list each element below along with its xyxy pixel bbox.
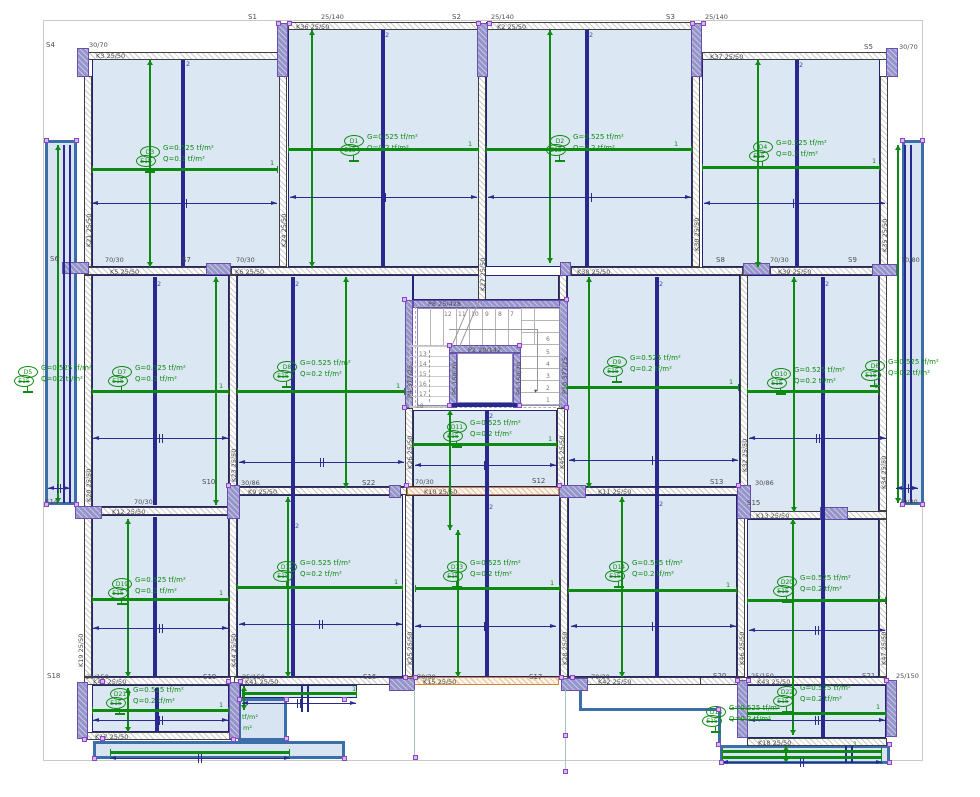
label: K38 25/50 xyxy=(577,269,610,276)
selection-handle[interactable] xyxy=(900,502,905,507)
selection-handle[interactable] xyxy=(238,679,243,684)
ctick xyxy=(588,193,589,202)
ell: E15 xyxy=(443,430,463,442)
column-S21[interactable] xyxy=(886,680,897,737)
selection-handle[interactable] xyxy=(920,138,925,143)
stair-step-number: 15 xyxy=(419,372,427,378)
selection-handle[interactable] xyxy=(447,343,452,348)
label: 1 xyxy=(219,702,223,709)
lbl f7 grn: G=0.525 tf/m² xyxy=(367,134,418,141)
label: K44 25/50 xyxy=(231,634,238,667)
label: K5 25/50 xyxy=(110,269,139,276)
selection-handle[interactable] xyxy=(559,675,564,680)
dimln xyxy=(704,203,885,204)
stair-step-number: 11 xyxy=(458,312,466,318)
selection-handle[interactable] xyxy=(276,21,281,26)
ell: E15 xyxy=(702,715,722,727)
ctick xyxy=(815,716,816,725)
selection-handle[interactable] xyxy=(402,405,407,410)
selection-handle[interactable] xyxy=(284,736,289,741)
label: K19 25/50 xyxy=(78,634,85,667)
ctick xyxy=(198,754,199,763)
etick xyxy=(736,587,737,594)
label: K47 25/50 xyxy=(881,632,888,665)
selection-handle[interactable] xyxy=(44,138,49,143)
ell: E15 xyxy=(546,144,566,156)
stair-step-number: 3 xyxy=(546,374,550,380)
etick xyxy=(879,164,880,171)
selection-handle[interactable] xyxy=(74,502,79,507)
ctick xyxy=(162,716,163,725)
dimension-line xyxy=(569,458,738,463)
selection-handle[interactable] xyxy=(476,21,481,26)
label: 1 xyxy=(674,141,678,148)
label: 2 xyxy=(589,32,593,39)
label: P10 377/25 xyxy=(562,357,569,394)
beam-K19[interactable] xyxy=(84,515,92,677)
selection-handle[interactable] xyxy=(413,675,418,680)
ctick xyxy=(652,456,653,465)
gndh xyxy=(782,711,792,713)
stair-step-number: 13 xyxy=(419,352,427,358)
arrR xyxy=(550,624,556,628)
triU xyxy=(55,145,61,150)
label: K30 25/50 xyxy=(694,218,701,251)
lbl f7 grn: G=0.525 tf/m² xyxy=(729,705,780,712)
selection-handle[interactable] xyxy=(287,21,292,26)
load-axis-line xyxy=(181,60,185,267)
label: 70/30 xyxy=(134,499,153,506)
selection-handle[interactable] xyxy=(517,343,522,348)
beam-K6[interactable] xyxy=(231,267,480,275)
arrR xyxy=(880,436,886,440)
stair-step-number: 2 xyxy=(546,386,550,392)
dimension-line xyxy=(290,195,477,200)
load-strip-line xyxy=(722,750,882,753)
lbl f7 grn: G=0.525 tf/m² xyxy=(794,367,845,374)
selection-handle[interactable] xyxy=(887,760,892,765)
stair-step-number: 18 xyxy=(416,404,424,410)
load-strip-line xyxy=(567,386,739,389)
selection-handle[interactable] xyxy=(920,502,925,507)
label: 2 xyxy=(659,501,663,508)
selection-handle[interactable] xyxy=(404,483,409,488)
etick xyxy=(228,596,229,603)
ctick xyxy=(908,484,909,493)
selection-handle[interactable] xyxy=(517,403,522,408)
load-axis-line xyxy=(821,277,825,737)
column-S22[interactable] xyxy=(389,485,401,498)
triU xyxy=(790,519,796,524)
selection-handle[interactable] xyxy=(716,742,721,747)
lbl f7 grn: G=0.525 tf/m² xyxy=(630,355,681,362)
load-strip-line xyxy=(242,692,357,695)
selection-handle[interactable] xyxy=(82,737,87,742)
etick xyxy=(242,690,243,697)
arrL xyxy=(896,486,902,490)
selection-handle[interactable] xyxy=(226,679,231,684)
dimension-line xyxy=(488,195,691,200)
ctick xyxy=(803,758,804,767)
ctick xyxy=(818,626,819,635)
selection-handle[interactable] xyxy=(564,405,569,410)
selection-handle[interactable] xyxy=(735,678,740,683)
column-S9[interactable] xyxy=(872,264,897,276)
column-S1[interactable] xyxy=(277,23,288,77)
selection-handle[interactable] xyxy=(413,755,418,760)
column-S5[interactable] xyxy=(886,48,898,77)
gndh xyxy=(452,446,462,448)
arrL xyxy=(569,458,575,462)
column-S3[interactable] xyxy=(691,23,702,77)
selection-handle[interactable] xyxy=(284,697,289,702)
selection-handle[interactable] xyxy=(563,769,568,774)
selection-handle[interactable] xyxy=(342,756,347,761)
selection-handle[interactable] xyxy=(237,697,242,702)
ctick xyxy=(818,716,819,725)
label: 2 xyxy=(385,32,389,39)
label: 25/150 xyxy=(896,673,919,680)
etick xyxy=(288,146,289,153)
arrL xyxy=(93,626,99,630)
dimension-line xyxy=(415,463,556,468)
slab-panel-D3[interactable] xyxy=(92,59,280,267)
etick xyxy=(747,388,748,395)
label: K2 25/50 xyxy=(497,24,526,31)
label: S21 xyxy=(862,673,875,680)
arrR xyxy=(271,201,277,205)
arrR xyxy=(222,436,228,440)
etick xyxy=(92,388,93,395)
dimension-line xyxy=(92,201,277,206)
selection-handle[interactable] xyxy=(231,737,236,742)
lbl f7 grn: Q=0.2 tf/m² xyxy=(135,588,177,595)
ctick xyxy=(382,193,383,202)
walk-line xyxy=(537,329,538,391)
column-S18[interactable] xyxy=(77,682,88,739)
arrL xyxy=(242,701,248,705)
load-direction-line xyxy=(588,277,590,488)
selection-handle[interactable] xyxy=(557,483,562,488)
triD xyxy=(619,672,625,677)
label: S20 xyxy=(713,673,726,680)
ctick xyxy=(323,458,324,467)
load-strip-line xyxy=(568,589,737,592)
selection-handle[interactable] xyxy=(100,736,105,741)
label: S17 xyxy=(529,674,542,681)
label: K21 25/50 xyxy=(86,214,93,247)
label: K36 25/50 xyxy=(296,24,329,31)
lbl f7 grn: Q=0.2 tf/m² xyxy=(800,586,842,593)
stair-step-number: 5 xyxy=(546,350,550,356)
label: S10 xyxy=(202,479,215,486)
label: K45 25/50 xyxy=(559,436,566,469)
lbl f7 grn: G=0.525 tf/m² xyxy=(133,687,184,694)
ctick xyxy=(487,461,488,470)
ell: E15 xyxy=(273,370,293,382)
label: 30/70 xyxy=(89,42,108,49)
lbl f7 grn: Q=0.2 tf/m² xyxy=(300,571,342,578)
arrR xyxy=(284,756,290,760)
slab-panel-D9[interactable] xyxy=(567,275,740,487)
load-strip-line xyxy=(110,751,290,754)
label: 1 xyxy=(726,582,730,589)
balcony-edge xyxy=(579,708,720,711)
selection-handle[interactable] xyxy=(44,502,49,507)
ctick xyxy=(159,716,160,725)
label: 1 xyxy=(219,590,223,597)
label: 70/30 xyxy=(770,257,789,264)
arrL xyxy=(749,436,755,440)
selection-handle[interactable] xyxy=(100,679,105,684)
dimension-line xyxy=(93,626,228,631)
arrR xyxy=(222,626,228,630)
gndh xyxy=(782,601,792,603)
walk-arrow: ▾ xyxy=(534,388,537,395)
selection-handle[interactable] xyxy=(342,697,347,702)
lbl f7 grn: G=0.525 tf/m² xyxy=(632,560,683,567)
lbl f7 grn: G=0.525 tf/m² xyxy=(776,140,827,147)
arrL xyxy=(239,460,245,464)
stair-step-number: 1 xyxy=(546,398,550,404)
ctick xyxy=(655,456,656,465)
etick xyxy=(486,146,487,153)
selection-handle[interactable] xyxy=(92,756,97,761)
column-S2[interactable] xyxy=(477,23,488,77)
etick xyxy=(92,166,93,173)
selection-handle[interactable] xyxy=(736,483,741,488)
balcony-left[interactable] xyxy=(45,140,77,505)
selection-handle[interactable] xyxy=(447,403,452,408)
triD xyxy=(309,262,315,267)
stair-step-number: 7 xyxy=(510,312,514,318)
load-direction-line xyxy=(57,145,59,503)
dimension-line xyxy=(722,760,882,765)
etick xyxy=(878,388,879,395)
label: S9 xyxy=(848,257,857,264)
arrR xyxy=(222,718,228,722)
label: 1 xyxy=(396,383,400,390)
triU xyxy=(755,60,761,65)
triU xyxy=(455,530,461,535)
etick xyxy=(691,146,692,153)
stair-step-number: 4 xyxy=(546,362,550,368)
column-S19[interactable] xyxy=(229,682,240,739)
load-direction-line xyxy=(897,145,899,503)
label: 1 xyxy=(219,383,223,390)
label: m² xyxy=(243,725,252,732)
arrL xyxy=(93,718,99,722)
dimension-line xyxy=(749,436,886,441)
column-S4[interactable] xyxy=(77,48,89,77)
stair-step-number: 12 xyxy=(444,312,452,318)
selection-handle[interactable] xyxy=(226,483,231,488)
label: K37 25/50 xyxy=(710,54,743,61)
label: 25/150 xyxy=(242,674,265,681)
column-S12[interactable] xyxy=(559,485,586,498)
label: 25/140 xyxy=(321,14,344,21)
selection-handle[interactable] xyxy=(570,675,575,680)
label: S22 xyxy=(362,480,375,487)
label: K34 25/50 xyxy=(881,456,888,489)
selection-handle[interactable] xyxy=(74,138,79,143)
label: K10 25/50 xyxy=(424,489,457,496)
ell: E15 xyxy=(605,570,625,582)
dimension-line xyxy=(704,201,885,206)
slab-panel-D8[interactable] xyxy=(237,275,413,487)
triU xyxy=(343,277,349,282)
gndh xyxy=(711,731,721,733)
dimension-line xyxy=(896,486,918,491)
lbl f7 grn: Q=0.2 tf/m² xyxy=(133,698,175,705)
triD xyxy=(213,500,219,505)
gndh xyxy=(612,381,622,383)
label: 1 xyxy=(270,160,274,167)
label: S16 xyxy=(363,674,376,681)
selection-handle[interactable] xyxy=(884,678,889,683)
label: 1 xyxy=(548,436,552,443)
selection-handle[interactable] xyxy=(716,707,721,712)
lbl f7 grn: G=0.525 tf/m² xyxy=(888,359,939,366)
triU xyxy=(791,277,797,282)
lbl f7 grn: Q=0.2 tf/m² xyxy=(300,371,342,378)
label: K24 25/50 xyxy=(281,214,288,247)
arrR xyxy=(398,460,404,464)
dimln xyxy=(92,203,277,204)
lbl f7 grn: Q=0.2 tf/m² xyxy=(135,376,177,383)
ctick xyxy=(319,620,320,629)
column-S14[interactable] xyxy=(75,506,102,519)
label: K12 25/50 xyxy=(112,509,145,516)
selection-handle[interactable] xyxy=(900,138,905,143)
load-axis-line xyxy=(153,517,157,677)
label: 1 xyxy=(352,686,356,693)
ctick xyxy=(320,458,321,467)
lbl f7 grn: G=0.525 tf/m² xyxy=(800,575,851,582)
selection-handle[interactable] xyxy=(746,678,751,683)
load-strip-line xyxy=(415,587,560,590)
label: 2 xyxy=(489,504,493,511)
ctick xyxy=(300,699,301,708)
selection-handle[interactable] xyxy=(563,733,568,738)
lbl f7 grn: Q=0.2 tf/m² xyxy=(41,376,83,383)
slab-panel-D20[interactable] xyxy=(747,519,879,677)
gndh xyxy=(282,586,292,588)
selection-handle[interactable] xyxy=(564,297,569,302)
ctick xyxy=(186,199,187,208)
label: 1 xyxy=(872,158,876,165)
label: K13 25/50 xyxy=(756,513,789,520)
label: 1 xyxy=(876,704,880,711)
slab-panel-D4[interactable] xyxy=(702,59,880,267)
label: 1 xyxy=(877,591,881,598)
slab-panel-D14[interactable] xyxy=(568,495,737,677)
triU xyxy=(447,410,453,415)
stair-step-number: 6 xyxy=(546,337,550,343)
dimln xyxy=(110,758,290,759)
triU xyxy=(619,497,625,502)
selection-handle[interactable] xyxy=(402,297,407,302)
dimln xyxy=(488,197,691,198)
label: tf/m² xyxy=(242,714,258,721)
selection-handle[interactable] xyxy=(487,21,492,26)
label: S15 xyxy=(747,500,760,507)
selection-handle[interactable] xyxy=(690,21,695,26)
label: 2 xyxy=(799,62,803,69)
etick xyxy=(885,710,886,717)
ctick xyxy=(652,622,653,631)
selection-handle[interactable] xyxy=(403,675,408,680)
etick xyxy=(559,585,560,592)
dimension-line xyxy=(110,756,290,761)
label: S8 xyxy=(716,257,725,264)
selection-handle[interactable] xyxy=(887,742,892,747)
label: K23 25/50 xyxy=(231,449,238,482)
ctick xyxy=(591,193,592,202)
arrL xyxy=(704,201,710,205)
stair-step-number: 8 xyxy=(498,312,502,318)
triD xyxy=(147,262,153,267)
column-S10[interactable] xyxy=(227,485,240,519)
selection-handle[interactable] xyxy=(719,760,724,765)
ctick xyxy=(385,193,386,202)
dimln xyxy=(569,460,738,461)
slab-panel-D10[interactable] xyxy=(747,275,879,512)
triU xyxy=(213,277,219,282)
label: S13 xyxy=(710,479,723,486)
gndh xyxy=(776,393,786,395)
dimension-line xyxy=(239,460,404,465)
arrR xyxy=(396,622,402,626)
ell: E15 xyxy=(273,570,293,582)
selection-handle[interactable] xyxy=(701,21,706,26)
label: K25 25/50 xyxy=(407,632,414,665)
ell: E15 xyxy=(773,585,793,597)
label: K46 25/50 xyxy=(739,632,746,665)
elevator-shaft xyxy=(457,353,513,403)
load-axis-line xyxy=(795,60,799,267)
label: K20 25/50 xyxy=(86,469,93,502)
ctick xyxy=(793,199,794,208)
etick xyxy=(885,597,886,604)
etick xyxy=(289,749,290,756)
label: S4 xyxy=(46,42,55,49)
arrL xyxy=(110,756,116,760)
label: K6 25/50 xyxy=(235,269,264,276)
triD xyxy=(790,730,796,735)
extension-line xyxy=(414,690,415,758)
triU xyxy=(147,60,153,65)
gndh xyxy=(349,160,359,162)
gndh xyxy=(555,160,565,162)
etick xyxy=(92,707,93,714)
column-S6[interactable] xyxy=(62,262,89,274)
column-S16[interactable] xyxy=(389,678,415,691)
column-S7[interactable] xyxy=(206,263,231,275)
lbl f7 grn: G=0.525 tf/m² xyxy=(470,560,521,567)
beam-K11[interactable] xyxy=(567,487,739,495)
triD xyxy=(586,483,592,488)
lbl f7 grn: G=0.525 tf/m² xyxy=(800,685,851,692)
label: 70/30 xyxy=(236,257,255,264)
column[interactable] xyxy=(560,262,571,276)
floor-plan-canvas[interactable]: ▾121110987654321131415161718K3 25/50K36 … xyxy=(0,0,980,797)
etick xyxy=(402,584,403,591)
ctick xyxy=(655,622,656,631)
label: 30/86 xyxy=(241,480,260,487)
label: P5 150/20 xyxy=(452,362,459,395)
label: S12 xyxy=(532,478,545,485)
